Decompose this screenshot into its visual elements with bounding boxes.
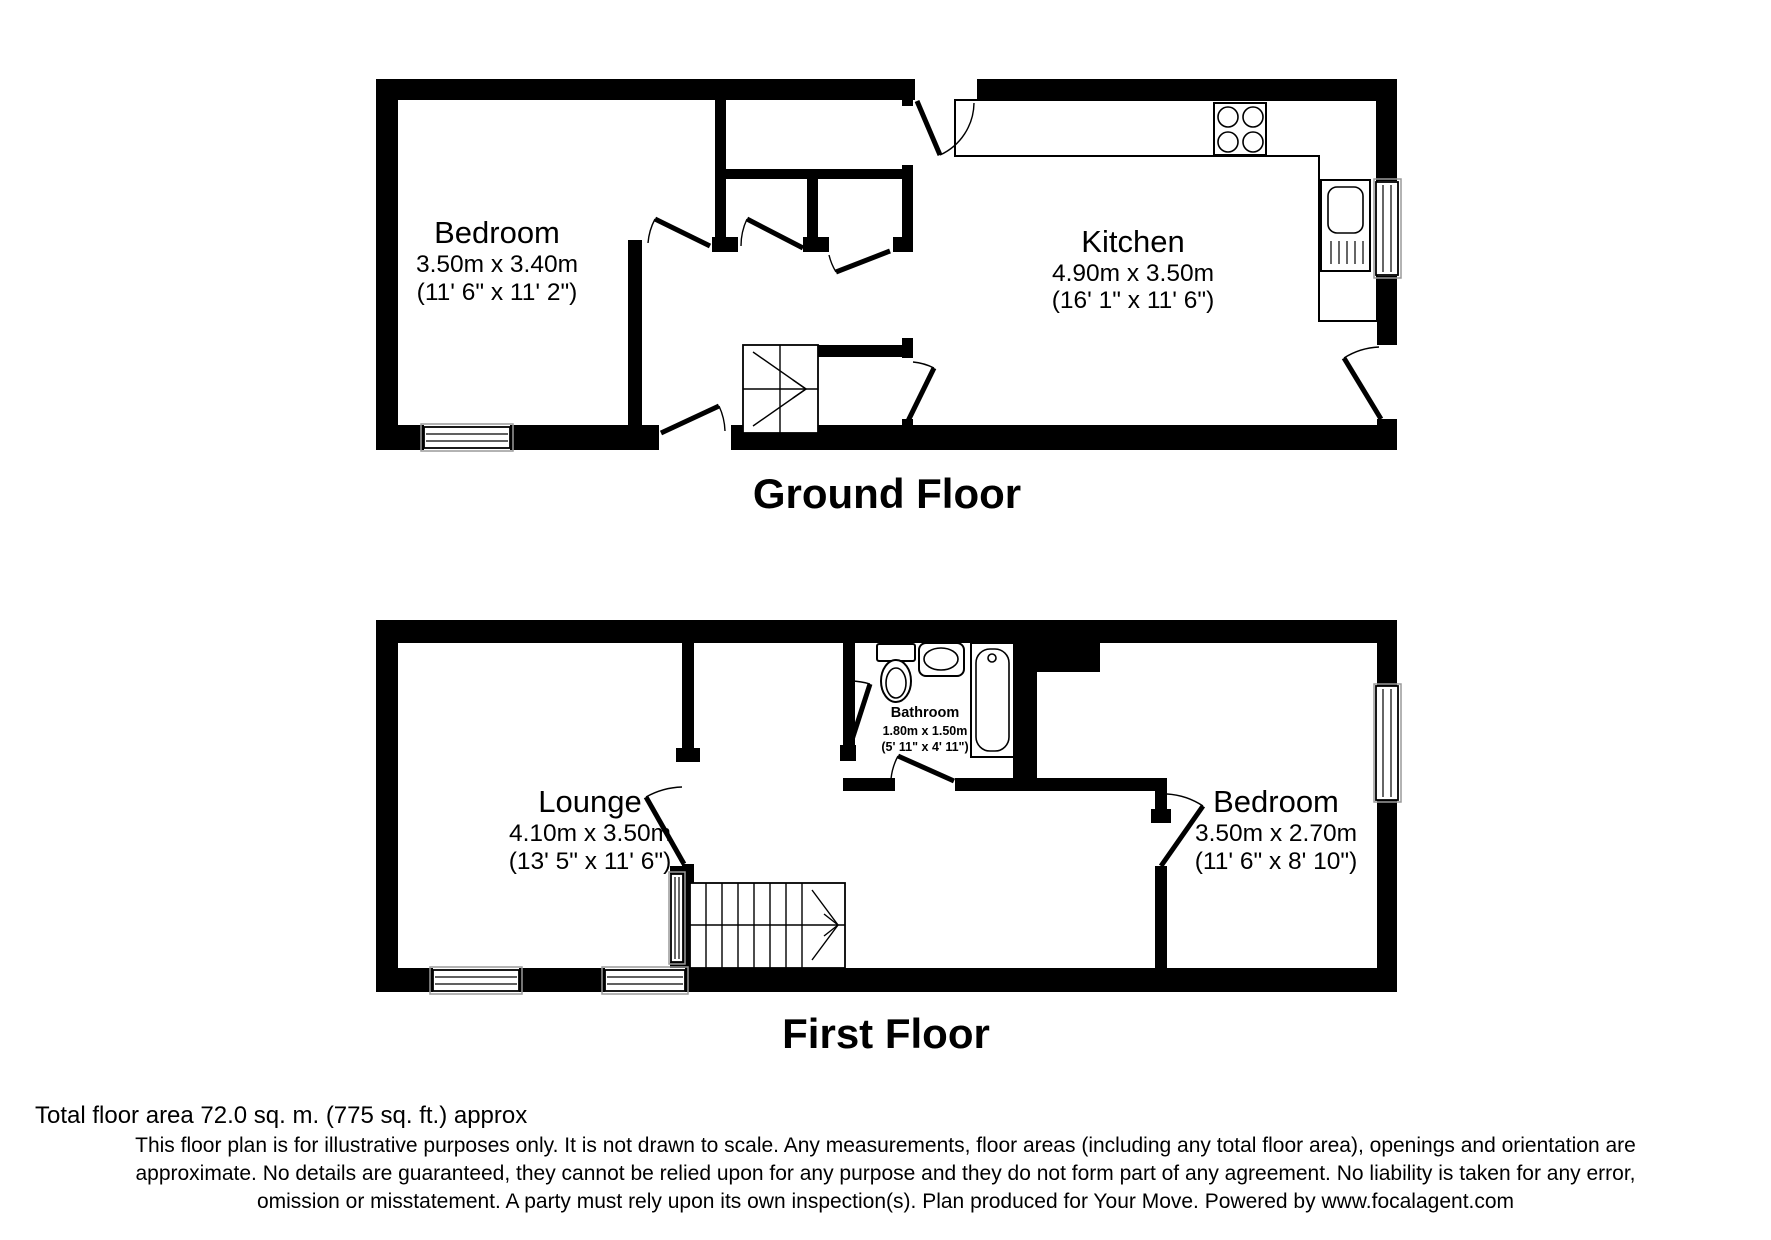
window-icon [1374,684,1401,802]
hob-icon [1214,103,1266,155]
bathroom-label: Bathroom [891,705,959,721]
first-bedroom-label: Bedroom [1213,784,1339,819]
window-icon [421,424,513,451]
ground-bedroom-metric: 3.50m x 3.40m [416,251,578,278]
disclaimer-line: approximate. No details are guaranteed, … [0,1162,1771,1186]
bath-icon [971,643,1014,757]
first-floor-plan: Lounge 4.10m x 3.50m (13' 5" x 11' 6") B… [376,620,1401,1057]
disclaimer-line: This floor plan is for illustrative purp… [0,1134,1771,1158]
door-arc-icon [891,756,954,781]
total-floor-area: Total floor area 72.0 sq. m. (775 sq. ft… [35,1102,527,1130]
bathroom-metric: 1.80m x 1.50m [883,724,968,738]
window-icon [1374,179,1401,278]
lounge-imperial: (13' 5" x 11' 6") [509,848,671,875]
door-arc-icon [1344,347,1381,419]
lounge-metric: 4.10m x 3.50m [509,820,671,847]
door-arc-icon [829,251,890,272]
kitchen-imperial: (16' 1" x 11' 6") [1052,287,1214,314]
bathroom-imperial: (5' 11" x 4' 11") [881,740,968,754]
basin-icon [919,643,964,676]
window-icon [602,967,688,994]
ground-floor-plan: Bedroom 3.50m x 3.40m (11' 6" x 11' 2") … [376,79,1401,517]
door-arc-icon [908,362,934,421]
floorplan-drawing: Bedroom 3.50m x 3.40m (11' 6" x 11' 2") … [0,0,1771,1240]
ground-bedroom-imperial: (11' 6" x 11' 2") [417,279,578,306]
ground-floor-title: Ground Floor [753,470,1021,517]
window-icon [669,872,685,964]
kitchen-door-opening [1377,345,1397,419]
toilet-icon [877,644,915,702]
door-arc-icon [741,219,803,248]
floorplan-page: Bedroom 3.50m x 3.40m (11' 6" x 11' 2") … [0,0,1771,1240]
kitchen-label: Kitchen [1081,224,1184,259]
door-arc-icon [648,219,710,246]
window-icon [430,967,522,994]
kitchen-metric: 4.90m x 3.50m [1052,260,1214,287]
disclaimer-line: omission or misstatement. A party must r… [0,1190,1771,1214]
stairs-icon [743,345,818,433]
first-floor-title: First Floor [782,1010,990,1057]
ground-bedroom-label: Bedroom [434,215,560,250]
stairs-icon [690,883,845,968]
first-bedroom-metric: 3.50m x 2.70m [1195,820,1357,847]
sink-icon [1321,180,1370,271]
first-bedroom-imperial: (11' 6" x 8' 10") [1195,848,1357,875]
lounge-label: Lounge [538,784,641,819]
front-door-opening [915,79,977,100]
